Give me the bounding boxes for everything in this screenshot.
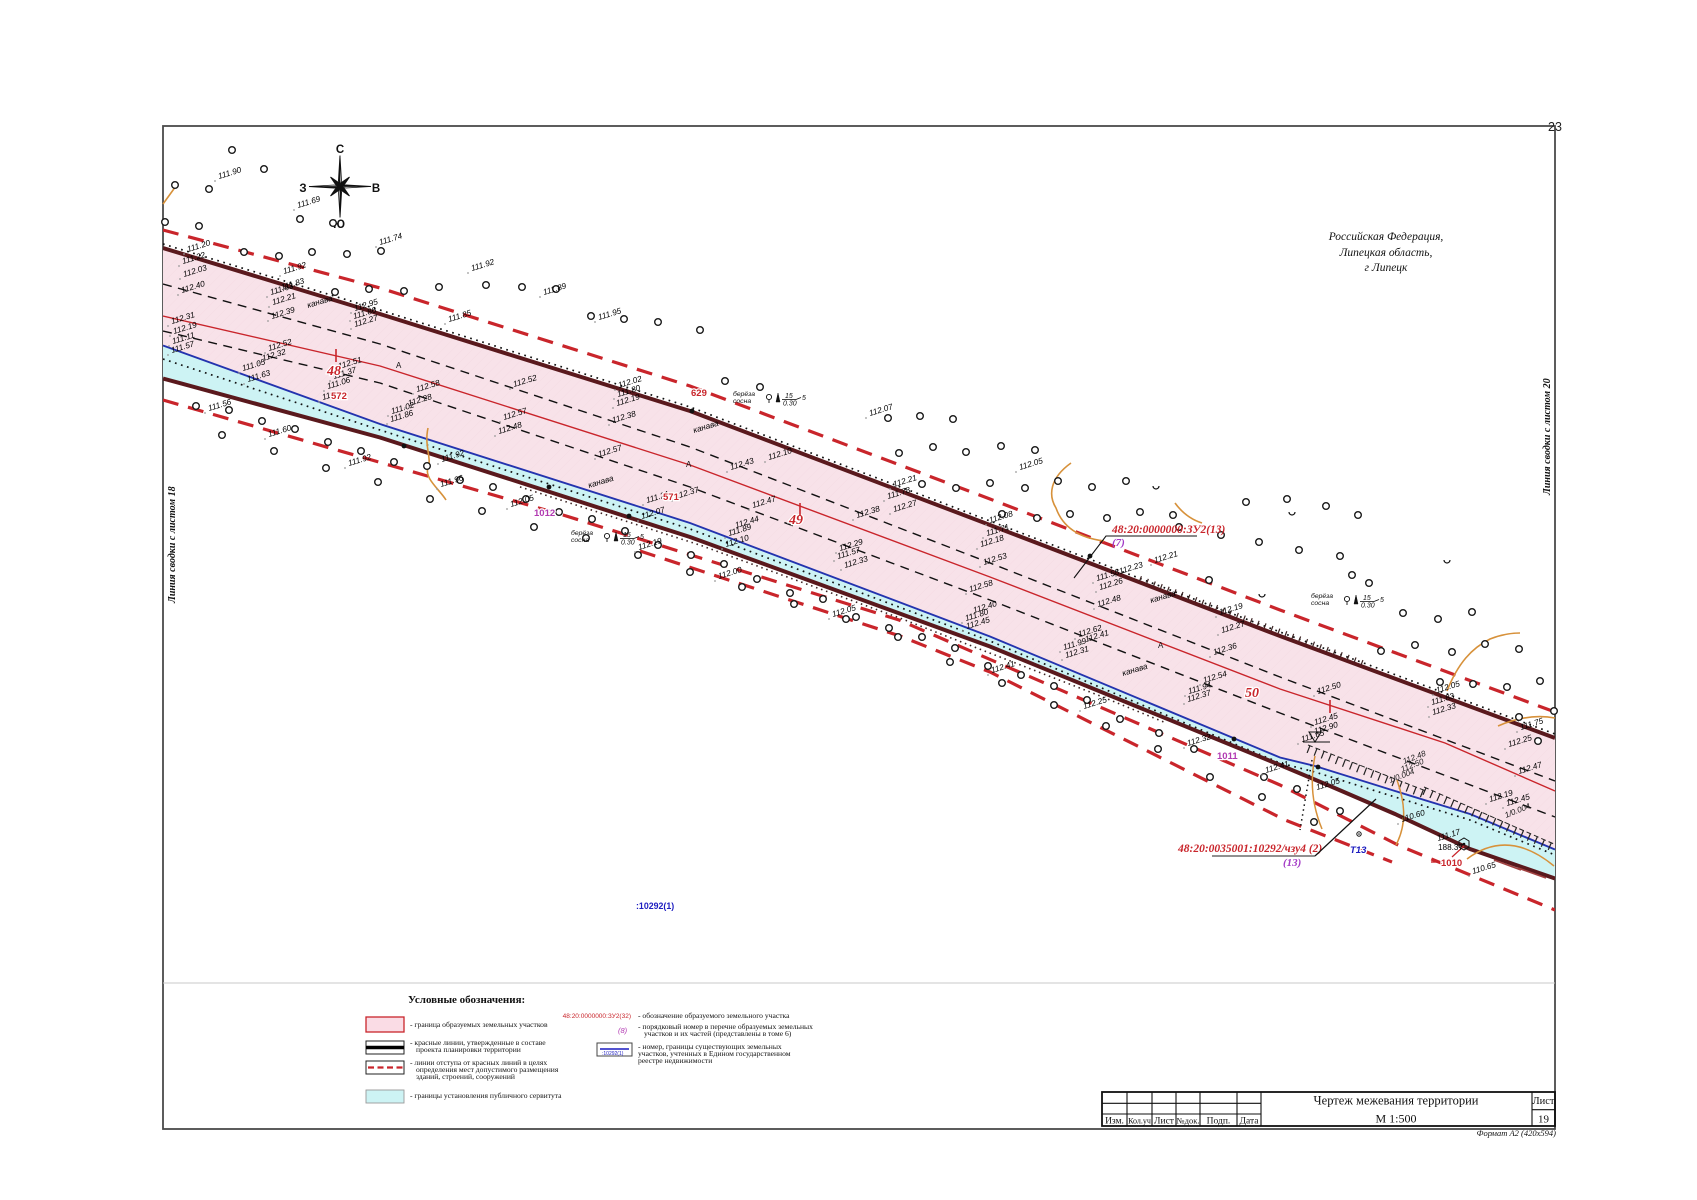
svg-text::10292(1): :10292(1) xyxy=(602,1051,624,1057)
svg-text:571: 571 xyxy=(663,492,680,503)
svg-text:15: 15 xyxy=(785,393,793,400)
svg-text:572: 572 xyxy=(331,391,347,402)
svg-text:№док.: №док. xyxy=(1177,1116,1200,1126)
svg-text:50: 50 xyxy=(1245,686,1259,701)
svg-text:участков и их частей (представ: участков и их частей (представлены в том… xyxy=(644,1029,792,1038)
svg-text:48:20:0035001:10292/чзу4 (2): 48:20:0035001:10292/чзу4 (2) xyxy=(1177,843,1322,855)
svg-text:берёза: берёза xyxy=(733,390,755,398)
svg-text:Условные обозначения:: Условные обозначения: xyxy=(408,994,525,1006)
svg-text:В: В xyxy=(372,183,380,195)
svg-text:- граница образуемых земельны: - граница образуемых земельных участков xyxy=(410,1020,548,1029)
svg-text:г Липецк: г Липецк xyxy=(1365,262,1409,274)
svg-text:реестре недвижимости: реестре недвижимости xyxy=(638,1056,712,1065)
svg-text:1010: 1010 xyxy=(1441,858,1462,869)
svg-text:0.30: 0.30 xyxy=(783,401,797,408)
svg-text:берёза: берёза xyxy=(1311,592,1333,600)
svg-text:Лист: Лист xyxy=(1533,1096,1555,1107)
svg-text:Российская Федерация,: Российская Федерация, xyxy=(1328,230,1444,243)
svg-text:Линия сводки с листом 20: Линия сводки с листом 20 xyxy=(1542,378,1553,496)
svg-text:Чертеж межевания территории: Чертеж межевания территории xyxy=(1314,1094,1479,1108)
svg-text:Липецкая область,: Липецкая область, xyxy=(1339,247,1433,259)
svg-text:зданий, строений, сооружений: зданий, строений, сооружений xyxy=(416,1072,515,1081)
svg-text:Лист: Лист xyxy=(1154,1117,1175,1127)
svg-text:А: А xyxy=(1158,641,1164,650)
svg-text:19: 19 xyxy=(1538,1114,1550,1126)
svg-text:(8): (8) xyxy=(618,1026,628,1035)
svg-text:Т13: Т13 xyxy=(1350,845,1367,856)
svg-text:5: 5 xyxy=(640,534,644,541)
svg-text:А: А xyxy=(686,460,692,469)
svg-text:48: 48 xyxy=(326,364,341,379)
svg-text:Линия сводки с листом 18: Линия сводки с листом 18 xyxy=(167,486,178,604)
svg-text:15: 15 xyxy=(1363,595,1371,602)
svg-text:Подп.: Подп. xyxy=(1207,1117,1231,1127)
svg-text:З: З xyxy=(299,183,306,195)
svg-text:629: 629 xyxy=(691,388,707,399)
svg-text:(7): (7) xyxy=(1112,537,1125,549)
svg-text:Изм.: Изм. xyxy=(1105,1117,1124,1127)
svg-text:Формат А2 (420х594): Формат А2 (420х594) xyxy=(1477,1128,1557,1138)
svg-text:5: 5 xyxy=(1380,597,1384,604)
svg-text:- границы установления публич: - границы установления публичного сервит… xyxy=(410,1091,562,1100)
svg-text:48:20:0000000:ЗУ2(32): 48:20:0000000:ЗУ2(32) xyxy=(563,1013,631,1020)
svg-text:1011: 1011 xyxy=(1217,751,1238,762)
svg-text:сосна: сосна xyxy=(733,398,751,405)
svg-text:Кол.уч: Кол.уч xyxy=(1128,1117,1151,1126)
svg-text:Дата: Дата xyxy=(1240,1117,1260,1127)
svg-text:(13): (13) xyxy=(1283,857,1301,869)
svg-text::10292(1): :10292(1) xyxy=(636,901,674,911)
svg-text:А: А xyxy=(396,361,402,370)
svg-text:15: 15 xyxy=(623,532,631,539)
svg-text:23: 23 xyxy=(1548,120,1562,134)
svg-text:сосна: сосна xyxy=(1311,600,1329,607)
svg-text:5: 5 xyxy=(802,395,806,402)
svg-text:0.30: 0.30 xyxy=(621,540,635,547)
svg-text:- обозначение образуемого зем: - обозначение образуемого земельного уча… xyxy=(638,1011,790,1020)
svg-text:проекта планировки территории: проекта планировки территории xyxy=(416,1045,521,1054)
svg-text:М 1:500: М 1:500 xyxy=(1375,1112,1416,1126)
svg-text:берёза: берёза xyxy=(571,529,593,537)
svg-text:сосна: сосна xyxy=(571,537,589,544)
svg-text:48:20:0000000:ЗУ2(13): 48:20:0000000:ЗУ2(13) xyxy=(1111,524,1226,536)
svg-text:С: С xyxy=(336,144,344,156)
svg-text:188.37: 188.37 xyxy=(1438,843,1463,852)
svg-text:0.30: 0.30 xyxy=(1361,603,1375,610)
svg-text:1012: 1012 xyxy=(534,508,555,519)
